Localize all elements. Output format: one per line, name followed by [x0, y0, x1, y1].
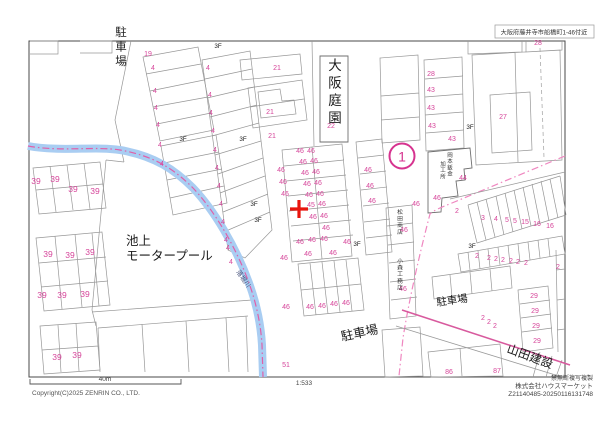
landmark-label: 園	[328, 111, 342, 126]
lot-number: 4	[229, 259, 233, 266]
lot-number: 46	[320, 213, 328, 220]
lot-number: 15	[521, 219, 529, 226]
lot-number: 4	[494, 216, 498, 223]
lot-number: 51	[282, 362, 290, 369]
floor-count-label: 3F	[179, 136, 187, 143]
lot-number: 21	[266, 109, 274, 116]
lot-number: 4	[211, 128, 215, 135]
lot-number: 46	[280, 255, 288, 262]
area-label-box: 大阪府藤井寺市船橋町1-46付近	[495, 25, 594, 38]
map-canvas[interactable]: 1 19444444444444444444212121222839393939…	[0, 0, 600, 424]
lot-number: 44	[459, 175, 467, 182]
floor-count-label: 3F	[214, 43, 222, 50]
lot-number: 2	[556, 264, 560, 271]
lot-number: 2	[501, 257, 505, 264]
landmark-label: 所	[440, 172, 446, 180]
landmark-label: 鈑	[447, 163, 453, 171]
lot-number: 43	[448, 136, 456, 143]
lot-number: 43	[428, 123, 436, 130]
floor-count-label: 3F	[254, 217, 262, 224]
lot-number: 46	[282, 304, 290, 311]
landmark-label: 大	[328, 58, 342, 73]
lot-number: 46	[412, 201, 420, 208]
lot-number: 46	[303, 181, 311, 188]
lot-number: 2	[487, 255, 491, 262]
lot-number: 4	[213, 147, 217, 154]
lot-number: 46	[314, 180, 322, 187]
landmark-label: 駐	[115, 25, 127, 39]
lot-number: 43	[427, 105, 435, 112]
lot-number: 4	[224, 237, 228, 244]
lot-number: 46	[309, 214, 317, 221]
landmark-label: 小	[397, 257, 403, 265]
lot-number: 16	[533, 221, 541, 228]
lot-number: 29	[532, 323, 540, 330]
lot-number: 46	[304, 251, 312, 258]
landmark-label: 松	[397, 208, 403, 216]
landmark-label: 森	[397, 264, 403, 272]
landmark-label: 庭	[328, 92, 342, 108]
map-page: 1 19444444444444444444212121222839393939…	[0, 0, 600, 424]
landmark-label: 車	[115, 40, 127, 54]
lot-number: 46	[296, 239, 304, 246]
lot-number: 46	[433, 195, 441, 202]
map-reference-marker[interactable]: 1	[390, 144, 415, 169]
company-name: 株式会社ハウスマーケット	[515, 381, 593, 390]
lot-number: 46	[322, 225, 330, 232]
landmark-label: 田	[397, 216, 403, 223]
lot-number: 46	[305, 192, 313, 199]
lot-number: 39	[80, 289, 90, 299]
copyright-text: Copyright(C)2025 ZENRIN CO., LTD.	[32, 390, 140, 397]
lot-number: 46	[281, 191, 289, 198]
landmark-label: 工	[397, 271, 403, 278]
lot-number: 2	[493, 323, 497, 330]
landmark-label: 商	[397, 221, 403, 229]
lot-number: 19	[144, 51, 152, 58]
lot-number: 39	[65, 250, 75, 260]
lot-number: 39	[50, 174, 60, 184]
lot-number: 21	[268, 133, 276, 140]
lot-number: 4	[209, 110, 213, 117]
scale-bar-label: 40m	[99, 376, 112, 383]
lot-number: 46	[316, 191, 324, 198]
lot-number: 39	[90, 186, 100, 196]
landmark-label: 池上	[126, 234, 151, 248]
lot-number: 46	[279, 179, 287, 186]
lot-number: 46	[312, 169, 320, 176]
lot-number: 2	[516, 259, 520, 266]
lot-number: 28	[427, 71, 435, 78]
lot-number: 39	[31, 176, 41, 186]
landmark-label: 加	[440, 160, 446, 168]
lot-number: 5	[505, 217, 509, 224]
scale-ratio: 1:533	[296, 380, 313, 387]
lot-number: 46	[296, 148, 304, 155]
lot-number: 46	[318, 201, 326, 208]
landmark-label: 店	[397, 283, 403, 291]
landmark-label: モータープール	[126, 249, 213, 263]
lot-number: 46	[308, 237, 316, 244]
lot-number: 29	[533, 338, 541, 345]
floor-count-label: 3F	[353, 241, 361, 248]
lot-number: 4	[154, 105, 158, 112]
lot-number: 4	[158, 142, 162, 149]
rights-notice: 禁無断複写複製	[551, 374, 593, 382]
lot-number: 39	[52, 352, 62, 362]
lot-number: 4	[219, 201, 223, 208]
lot-number: 45	[307, 202, 315, 209]
lot-number: 2	[475, 253, 479, 260]
lot-number: 4	[208, 92, 212, 99]
lot-number: 46	[301, 170, 309, 177]
lot-number: 46	[343, 239, 351, 246]
floor-count-label: 3F	[468, 243, 476, 250]
lot-number: 2	[487, 319, 491, 326]
lot-number: 46	[366, 183, 374, 190]
lot-number: 4	[151, 65, 155, 72]
lot-number: 46	[277, 167, 285, 174]
area-label: 大阪府藤井寺市船橋町1-46付近	[501, 29, 588, 37]
print-serial: Z21140485-20250116131748	[508, 391, 593, 398]
lot-number: 2	[509, 258, 513, 265]
landmark-label: 本	[447, 157, 453, 165]
lot-number: 4	[226, 245, 230, 252]
lot-number: 39	[72, 350, 82, 360]
lot-number: 4	[215, 165, 219, 172]
lot-number: 46	[330, 301, 338, 308]
lot-number: 46	[318, 303, 326, 310]
lot-number: 2	[494, 256, 498, 263]
lot-number: 4	[217, 183, 221, 190]
lot-number: 46	[364, 167, 372, 174]
lot-number: 39	[57, 290, 67, 300]
lot-number: 28	[534, 40, 542, 47]
lot-number: 16	[546, 223, 554, 230]
lot-number: 2	[524, 260, 528, 267]
landmark-label: 岡	[447, 152, 453, 159]
lot-number: 46	[342, 300, 350, 307]
lot-number: 5	[513, 218, 517, 225]
landmark-label: 務	[397, 277, 403, 285]
lot-number: 39	[85, 247, 95, 257]
lot-number: 86	[445, 369, 453, 376]
lot-number: 39	[68, 184, 78, 194]
lot-number: 46	[310, 158, 318, 165]
marker-number: 1	[398, 149, 406, 165]
lot-number: 46	[299, 159, 307, 166]
lot-number: 39	[43, 249, 53, 259]
floor-count-label: 3F	[466, 124, 474, 131]
floor-count-label: 3F	[250, 201, 258, 208]
lot-number: 2	[455, 208, 459, 215]
lot-number: 4	[156, 122, 160, 129]
lot-number: 27	[499, 114, 507, 121]
lot-number: 29	[530, 293, 538, 300]
lot-number: 21	[273, 65, 281, 72]
landmark-label: 店	[397, 228, 403, 236]
lot-number: 46	[320, 236, 328, 243]
landmark-label: 金	[447, 170, 453, 178]
lot-number: 46	[329, 250, 337, 257]
landmark-label: 場	[115, 55, 127, 68]
lot-number: 4	[221, 219, 225, 226]
lot-number: 43	[427, 87, 435, 94]
lot-number: 39	[37, 290, 47, 300]
lot-number: 4	[206, 65, 210, 72]
landmark-label: 阪	[328, 76, 342, 91]
lot-number: 4	[153, 88, 157, 95]
lot-number: 3	[481, 215, 485, 222]
lot-number: 46	[307, 148, 315, 155]
lot-number: 46	[368, 198, 376, 205]
lot-number: 46	[306, 304, 314, 311]
lot-number: 2	[481, 315, 485, 322]
lot-number: 87	[493, 368, 501, 375]
floor-count-label: 3F	[239, 136, 247, 143]
lot-number: 4	[160, 161, 164, 168]
lot-number: 29	[531, 308, 539, 315]
landmark-label: 工	[440, 167, 446, 174]
scale-bar: 40m 1:533	[30, 376, 313, 387]
